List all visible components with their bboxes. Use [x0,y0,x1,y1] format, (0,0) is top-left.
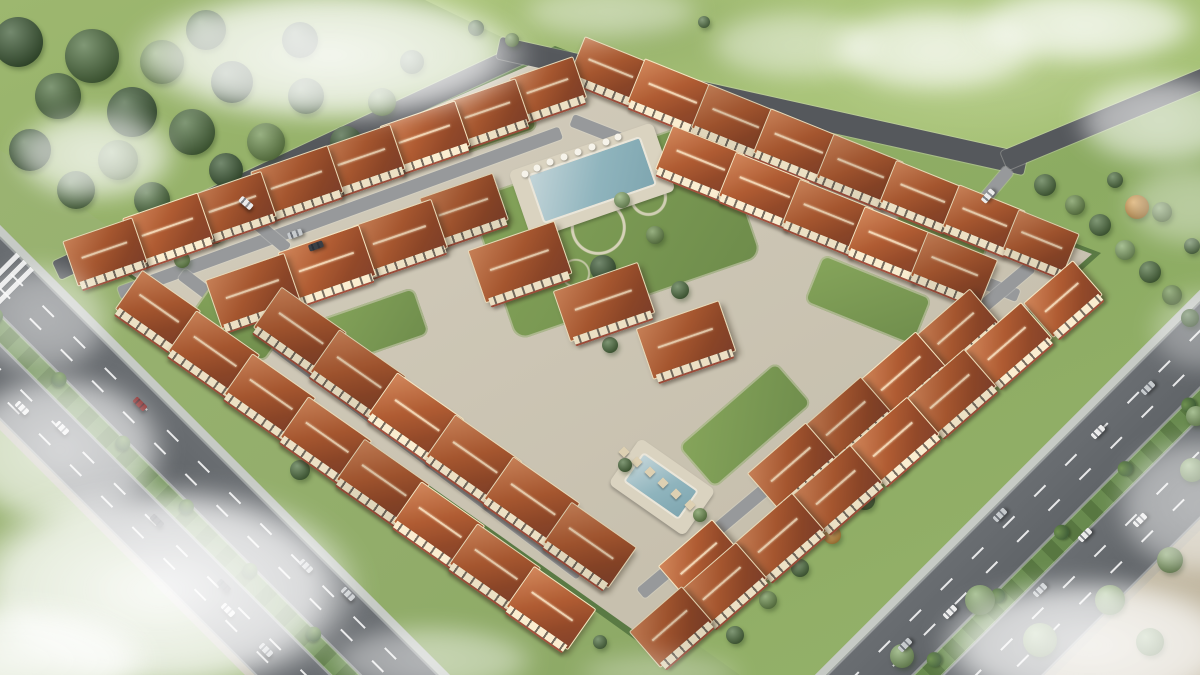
aerial-render-scene [0,0,1200,675]
tree [1139,261,1161,283]
tree [1065,195,1085,215]
pool-umbrella [603,139,610,146]
pool-umbrella [615,134,622,141]
tree [618,458,632,472]
tree [1034,174,1056,196]
tree [759,591,777,609]
pool-umbrella [561,154,568,161]
tree [602,337,618,353]
pool-umbrella [575,149,582,156]
tree [646,226,664,244]
pool-umbrella [589,144,596,151]
pool-umbrella [547,159,554,166]
tree [614,192,630,208]
tree [726,626,744,644]
pool-umbrella [534,165,541,172]
tree [671,281,689,299]
pool-umbrella [522,171,529,178]
tree [693,508,707,522]
